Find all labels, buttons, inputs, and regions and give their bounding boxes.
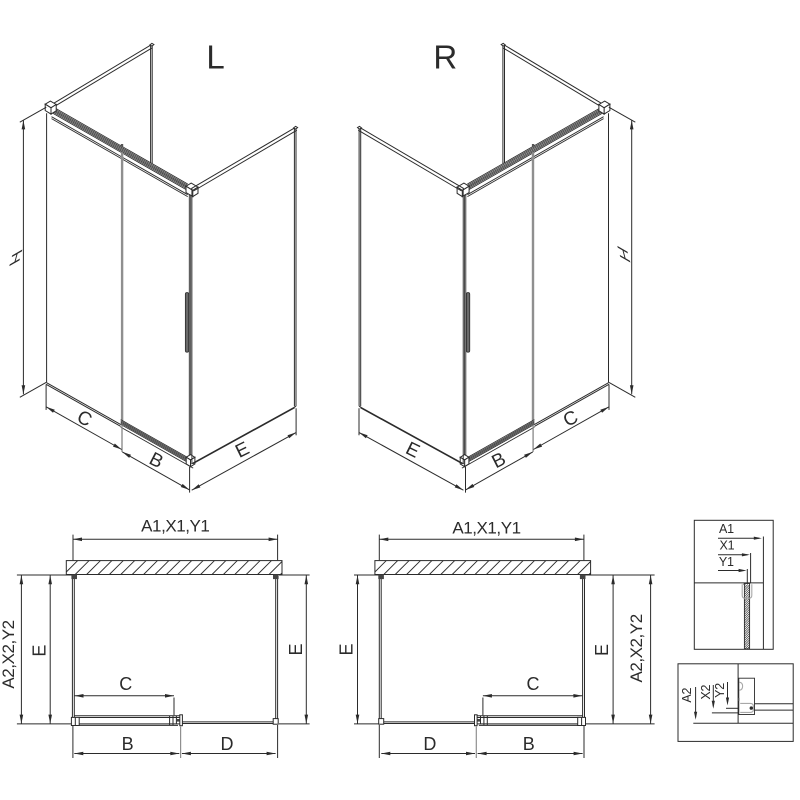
svg-text:B: B xyxy=(122,734,134,754)
svg-text:X2: X2 xyxy=(699,685,713,700)
svg-text:Y1: Y1 xyxy=(719,555,734,569)
svg-text:E: E xyxy=(592,644,612,656)
svg-text:A1: A1 xyxy=(719,522,734,536)
svg-text:D: D xyxy=(221,734,234,754)
svg-text:E: E xyxy=(336,643,356,655)
svg-text:B: B xyxy=(523,734,535,754)
svg-text:Y2: Y2 xyxy=(713,683,727,698)
svg-text:X1: X1 xyxy=(720,539,735,553)
svg-text:A2,X2,Y2: A2,X2,Y2 xyxy=(627,614,646,682)
svg-text:E: E xyxy=(30,645,50,657)
svg-text:L: L xyxy=(206,39,224,76)
svg-text:A1,X1,Y1: A1,X1,Y1 xyxy=(141,516,209,535)
svg-text:A2,X2,Y2: A2,X2,Y2 xyxy=(0,620,18,688)
svg-text:C: C xyxy=(119,674,132,694)
svg-text:E: E xyxy=(286,643,306,655)
svg-text:R: R xyxy=(433,39,457,76)
svg-text:D: D xyxy=(423,734,436,754)
svg-text:C: C xyxy=(527,674,540,694)
svg-text:A1,X1,Y1: A1,X1,Y1 xyxy=(452,518,520,537)
svg-text:A2: A2 xyxy=(680,688,694,703)
